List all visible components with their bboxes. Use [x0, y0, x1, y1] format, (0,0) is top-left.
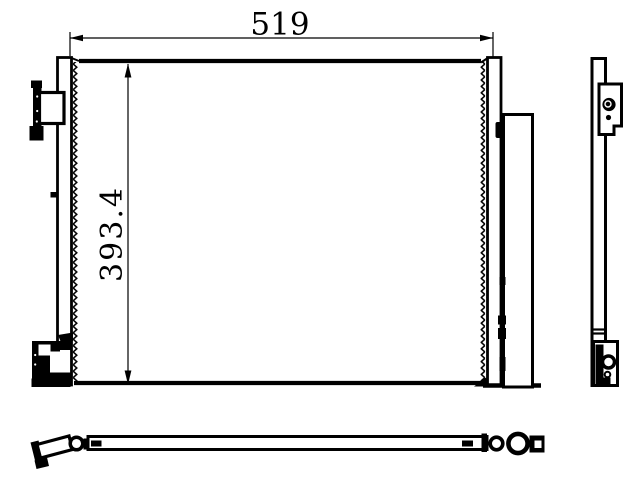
bottom-left-bracket-arm-top: [60, 341, 71, 350]
bottom-right-small-port: [490, 437, 503, 450]
top-left-bracket-frame: [40, 93, 65, 124]
bottom-right-large-port: [508, 434, 527, 453]
right-fin-serration: [481, 62, 487, 382]
condenser-technical-drawing: 519 393.4: [0, 0, 642, 500]
height-dimension: 393.4: [95, 64, 131, 385]
bottom-right-divider: [482, 434, 488, 453]
top-left-bracket-foot: [30, 126, 44, 141]
bracket-hole-icon: [36, 120, 38, 122]
width-arrow-right-icon: [480, 35, 493, 41]
bottom-left-connector: [84, 439, 90, 450]
bottom-view: [31, 434, 545, 470]
bottom-left-bracket-notch: [39, 345, 51, 356]
side-bottom-pin: [605, 372, 611, 378]
bottom-left-bracket-base: [32, 379, 71, 388]
side-top-pin: [606, 115, 611, 120]
width-dimension: 519: [70, 7, 493, 59]
receiver-drier: [504, 115, 533, 388]
bottom-left-fitting-body: [37, 436, 73, 458]
left-tank-mid-tab: [51, 192, 58, 198]
bottom-right-tab-hole: [535, 441, 542, 449]
bracket-hole-icon: [36, 110, 38, 112]
top-left-bracket-cap: [31, 81, 42, 89]
width-arrow-left-icon: [70, 35, 83, 41]
side-view: [592, 59, 622, 386]
bottom-left-port: [70, 437, 83, 450]
drier-tab-1: [500, 277, 506, 285]
bracket-hole-icon: [34, 354, 36, 356]
bottom-left-weld-mark: [91, 441, 102, 447]
width-dimension-label: 519: [250, 7, 309, 43]
drier-tab-4: [500, 357, 506, 371]
drier-tab-2: [498, 316, 506, 325]
bottom-left-bracket-window: [50, 352, 61, 373]
drier-upper-mount-tab: [496, 122, 505, 138]
bottom-view-tube: [88, 437, 487, 450]
drawing-canvas: 519 393.4: [0, 0, 642, 500]
bracket-hole-icon: [34, 363, 36, 365]
drier-tab-3: [498, 328, 506, 339]
bottom-right-weld-mark: [462, 441, 473, 447]
height-dimension-label: 393.4: [95, 186, 130, 282]
height-arrow-top-icon: [125, 64, 132, 78]
bracket-hole-icon: [36, 95, 38, 97]
side-bottom-foot: [596, 378, 611, 386]
side-bottom-port: [603, 356, 615, 368]
